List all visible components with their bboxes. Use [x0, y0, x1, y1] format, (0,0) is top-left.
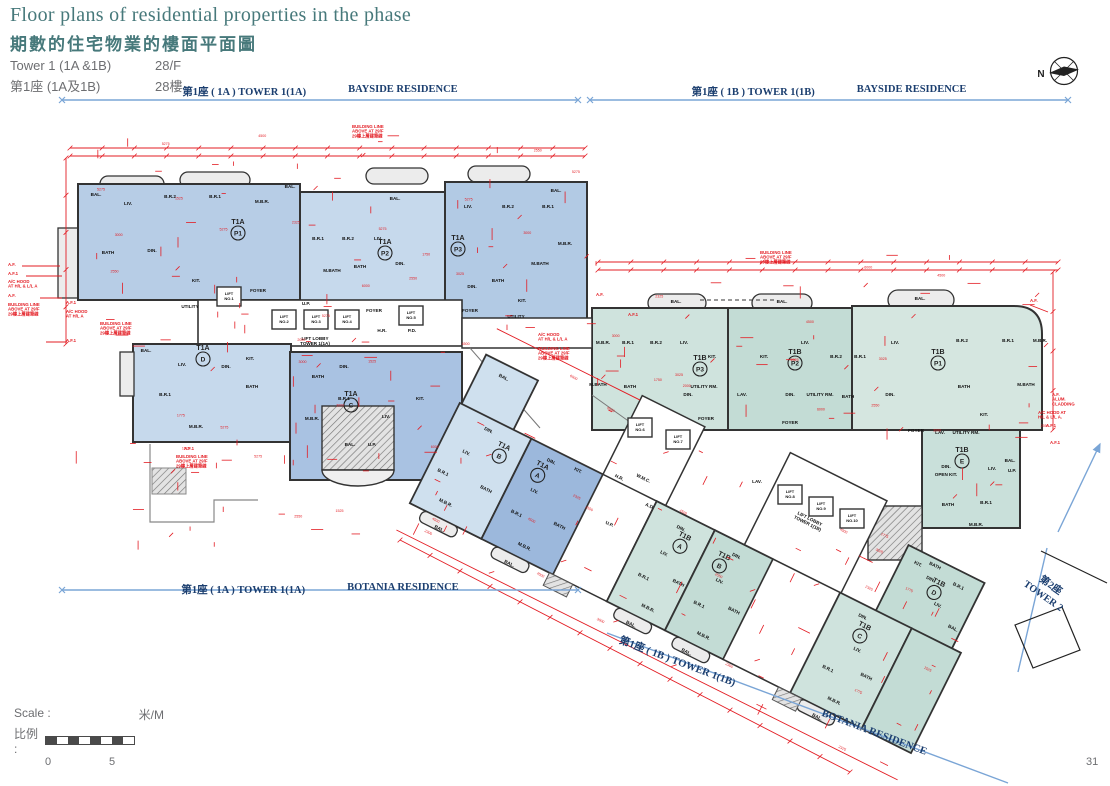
svg-text:1525: 1525: [368, 360, 376, 364]
svg-text:BAL.: BAL.: [91, 192, 102, 197]
boundary-top-right: 第1座 ( 1B ) TOWER 1(1B) BAYSIDE RESIDENCE: [590, 84, 1068, 99]
svg-text:FOYER: FOYER: [908, 428, 925, 433]
svg-text:NO.3: NO.3: [311, 319, 321, 324]
scale-label-en: Scale :: [14, 706, 51, 723]
floor-label-zh: 28樓: [155, 76, 182, 95]
svg-text:UTILITY RM.: UTILITY RM.: [953, 430, 980, 435]
boundary-zh: 第1座 ( 1B ) TOWER 1(1B): [692, 84, 815, 99]
svg-text:1525: 1525: [175, 196, 183, 200]
svg-text:FOYER: FOYER: [250, 288, 267, 293]
svg-text:BATH: BATH: [624, 384, 637, 389]
svg-text:P1: P1: [234, 230, 242, 237]
tower-floor-en: Tower 1 (1A &1B) 28/F: [10, 58, 411, 73]
svg-text:M.B.R.: M.B.R.: [255, 199, 269, 204]
svg-text:A.F.1: A.F.1: [628, 312, 639, 317]
boundary-en: BOTANIA RESIDENCE: [347, 582, 459, 597]
svg-text:T1A: T1A: [451, 235, 464, 242]
svg-text:3000: 3000: [523, 231, 531, 235]
svg-text:BAL.: BAL.: [345, 442, 356, 447]
svg-text:T1B: T1B: [693, 355, 706, 362]
svg-text:BUILDING LINEABOVE AT 29/F29樓上: BUILDING LINEABOVE AT 29/F29樓上層建築線: [538, 346, 570, 361]
svg-text:BAL.: BAL.: [915, 296, 926, 301]
svg-text:M.BATH: M.BATH: [323, 268, 341, 273]
svg-text:U.P.: U.P.: [368, 442, 376, 447]
svg-text:2550: 2550: [871, 404, 879, 408]
svg-text:M.BATH: M.BATH: [589, 382, 607, 387]
svg-text:LIV.: LIV.: [988, 466, 996, 471]
svg-text:OPEN KIT.: OPEN KIT.: [935, 472, 957, 477]
svg-text:6000: 6000: [431, 445, 439, 449]
boundary-zh: 第1座 ( 1A ) TOWER 1(1A): [181, 582, 305, 597]
tower-floor-zh: 第1座 (1A及1B) 28樓: [10, 76, 411, 95]
svg-text:3000: 3000: [612, 334, 620, 338]
svg-text:B.R.2: B.R.2: [650, 340, 662, 345]
svg-text:BAL.: BAL.: [551, 188, 562, 193]
svg-text:NO.8: NO.8: [785, 494, 795, 499]
svg-text:A.F.: A.F.: [596, 292, 604, 297]
svg-text:BAL.: BAL.: [671, 299, 682, 304]
svg-text:M.B.R.: M.B.R.: [305, 416, 319, 421]
svg-text:M.B.R.: M.B.R.: [189, 424, 203, 429]
svg-text:LIV.: LIV.: [124, 201, 132, 206]
svg-text:LIV.: LIV.: [801, 340, 809, 345]
svg-text:2325: 2325: [655, 295, 663, 299]
svg-text:KIT.: KIT.: [246, 356, 254, 361]
scale-bar: Scale : 米/M 比例 : 0 5: [14, 706, 164, 768]
svg-text:2325: 2325: [865, 585, 874, 592]
svg-text:2550: 2550: [294, 514, 302, 518]
svg-text:T1B: T1B: [955, 447, 968, 454]
svg-text:DIN.: DIN.: [785, 392, 794, 397]
compass-needle: [1049, 67, 1079, 77]
svg-text:6000: 6000: [362, 284, 370, 288]
svg-text:5275: 5275: [254, 455, 262, 459]
svg-text:KIT.: KIT.: [760, 354, 768, 359]
svg-text:BUILDING LINEABOVE AT 29/F29樓上: BUILDING LINEABOVE AT 29/F29樓上層建築線: [8, 302, 40, 317]
svg-text:A/C HOODAT H/L & L/L A: A/C HOODAT H/L & L/L A: [8, 279, 37, 289]
north-compass: N: [1037, 58, 1079, 85]
svg-text:2300: 2300: [424, 529, 433, 536]
svg-text:DIN.: DIN.: [885, 392, 894, 397]
svg-text:BUILDING LINEABOVE AT 29/F29樓上: BUILDING LINEABOVE AT 29/F29樓上層建築線: [100, 321, 132, 336]
svg-text:5275: 5275: [465, 197, 473, 201]
svg-text:4500: 4500: [462, 342, 470, 346]
svg-text:4500: 4500: [937, 274, 945, 278]
svg-text:DIN.: DIN.: [221, 364, 230, 369]
svg-text:5275: 5275: [322, 314, 330, 318]
svg-text:U.P.: U.P.: [302, 301, 310, 306]
svg-text:DIN.: DIN.: [339, 364, 348, 369]
svg-text:T1A: T1A: [378, 239, 391, 246]
svg-text:5275: 5275: [220, 227, 228, 231]
svg-text:P3: P3: [454, 246, 462, 253]
svg-text:FOYER: FOYER: [782, 420, 799, 425]
svg-text:P.D.: P.D.: [408, 328, 416, 333]
svg-text:LIV.: LIV.: [680, 340, 688, 345]
svg-text:A/C HOODAT H/L A: A/C HOODAT H/L A: [66, 309, 88, 319]
header: Floor plans of residential properties in…: [10, 4, 411, 95]
svg-text:B.R.1: B.R.1: [159, 392, 171, 397]
svg-text:BUILDING LINEABOVE AT 29/F29樓上: BUILDING LINEABOVE AT 29/F29樓上層建築線: [352, 124, 384, 139]
svg-text:BATH: BATH: [102, 250, 115, 255]
svg-text:P3: P3: [696, 366, 704, 373]
svg-text:KIT.: KIT.: [518, 298, 526, 303]
svg-text:A.F.: A.F.: [1030, 298, 1038, 303]
scale-unit: 米/M: [139, 706, 164, 723]
floor-label-en: 28/F: [155, 58, 181, 73]
svg-text:A.F.ALUM.CLADDING: A.F.ALUM.CLADDING: [1052, 392, 1075, 406]
svg-text:KIT.: KIT.: [192, 278, 200, 283]
svg-text:3000: 3000: [933, 429, 941, 433]
svg-text:NO.4: NO.4: [342, 319, 352, 324]
svg-text:1525: 1525: [182, 446, 190, 450]
page-title-zh: 期數的住宅物業的樓面平面圖: [10, 30, 411, 55]
svg-text:C: C: [349, 402, 354, 409]
svg-text:3025: 3025: [675, 373, 683, 377]
svg-text:B.R.1: B.R.1: [312, 236, 324, 241]
svg-text:BATH: BATH: [942, 502, 955, 507]
boundary-en: BAYSIDE RESIDENCE: [857, 84, 967, 99]
svg-text:BATH: BATH: [492, 278, 505, 283]
svg-text:BATH: BATH: [354, 264, 367, 269]
svg-text:A.F.: A.F.: [8, 262, 16, 267]
brochure-page: N BAL.DIN.LIV.B.R.1M.B.R.BATHBAL.DIN.KIT…: [0, 0, 1110, 786]
svg-text:D: D: [201, 356, 206, 363]
svg-text:NO.10: NO.10: [846, 518, 858, 523]
svg-text:BATH: BATH: [958, 384, 971, 389]
scale-label-zh: 比例 :: [14, 725, 44, 756]
svg-text:BUILDING LINEABOVE AT 29/F29樓上: BUILDING LINEABOVE AT 29/F29樓上層建築線: [176, 454, 208, 469]
svg-text:5275: 5275: [220, 425, 228, 429]
svg-text:UTILITY: UTILITY: [507, 314, 524, 319]
svg-text:BAL.: BAL.: [285, 184, 296, 189]
svg-text:P2: P2: [381, 250, 389, 257]
svg-text:2000: 2000: [297, 338, 305, 342]
svg-text:KIT.: KIT.: [416, 396, 424, 401]
svg-text:3000: 3000: [596, 617, 605, 624]
svg-text:B.R.2: B.R.2: [956, 338, 968, 343]
page-number: 31: [1086, 756, 1098, 768]
svg-text:BATH: BATH: [312, 374, 325, 379]
scale-bar-segments: [45, 736, 135, 745]
svg-text:LIV.: LIV.: [382, 414, 390, 419]
svg-text:5275: 5275: [97, 188, 105, 192]
svg-text:B.R.1: B.R.1: [854, 354, 866, 359]
svg-text:KIT.: KIT.: [980, 412, 988, 417]
svg-text:U.P.: U.P.: [1008, 468, 1016, 473]
svg-text:2000: 2000: [683, 384, 691, 388]
svg-text:M.B.R.: M.B.R.: [969, 522, 983, 527]
page-title-en: Floor plans of residential properties in…: [10, 4, 411, 27]
svg-text:3000: 3000: [336, 404, 344, 408]
svg-text:LIV.: LIV.: [464, 204, 472, 209]
svg-text:B.R.2: B.R.2: [502, 204, 514, 209]
svg-text:T1A: T1A: [231, 219, 244, 226]
svg-text:FOYER: FOYER: [698, 416, 715, 421]
svg-text:UTILITY RM.: UTILITY RM.: [691, 384, 718, 389]
svg-text:E: E: [960, 458, 965, 465]
svg-text:BAL.: BAL.: [141, 348, 152, 353]
svg-text:6000: 6000: [569, 374, 578, 381]
svg-text:M.BATH: M.BATH: [1017, 382, 1035, 387]
svg-text:KIT.: KIT.: [708, 354, 716, 359]
svg-text:DIN.: DIN.: [395, 261, 404, 266]
svg-text:NO.1: NO.1: [224, 296, 234, 301]
svg-text:3000: 3000: [299, 360, 307, 364]
svg-text:FOYER: FOYER: [366, 308, 383, 313]
svg-text:BUILDING LINEABOVE AT 29/F29樓上: BUILDING LINEABOVE AT 29/F29樓上層建築線: [760, 250, 792, 265]
svg-text:T1A: T1A: [196, 345, 209, 352]
svg-text:BAL.: BAL.: [390, 196, 401, 201]
svg-text:DIN.: DIN.: [467, 284, 476, 289]
svg-text:DIN.: DIN.: [147, 248, 156, 253]
tower-name-zh: 第1座 (1A及1B): [10, 76, 155, 95]
svg-text:M.B.R.: M.B.R.: [558, 241, 572, 246]
svg-text:LAV.: LAV.: [737, 392, 747, 397]
svg-text:5275: 5275: [162, 142, 170, 146]
svg-text:B.R.1: B.R.1: [1002, 338, 1014, 343]
svg-text:BATH: BATH: [246, 384, 259, 389]
svg-text:DIN.: DIN.: [683, 392, 692, 397]
svg-text:3025: 3025: [879, 357, 887, 361]
svg-text:A.F.1: A.F.1: [8, 271, 19, 276]
svg-text:2550: 2550: [409, 276, 417, 280]
svg-text:T1A: T1A: [344, 391, 357, 398]
svg-text:UTILITY RM.: UTILITY RM.: [807, 392, 834, 397]
svg-text:BATH: BATH: [842, 394, 855, 399]
svg-text:A.F.1: A.F.1: [1050, 440, 1061, 445]
svg-text:1775: 1775: [177, 414, 185, 418]
svg-text:NO.6: NO.6: [635, 427, 645, 432]
svg-text:2550: 2550: [534, 148, 542, 152]
svg-text:DIN.: DIN.: [941, 464, 950, 469]
svg-text:1750: 1750: [422, 253, 430, 257]
svg-text:P1: P1: [934, 360, 942, 367]
svg-text:NO.5: NO.5: [406, 315, 416, 320]
svg-text:4500: 4500: [536, 571, 545, 578]
svg-text:M.B.R.: M.B.R.: [1033, 338, 1047, 343]
svg-text:LAV.: LAV.: [752, 479, 762, 484]
svg-text:4500: 4500: [806, 320, 814, 324]
svg-text:A.F.1: A.F.1: [66, 300, 77, 305]
svg-text:LIV.: LIV.: [891, 340, 899, 345]
floor-plan-svg: N BAL.DIN.LIV.B.R.1M.B.R.BATHBAL.DIN.KIT…: [0, 0, 1110, 786]
svg-text:BAL.: BAL.: [1005, 458, 1016, 463]
svg-text:T1B: T1B: [788, 349, 801, 356]
svg-text:NO.7: NO.7: [673, 439, 683, 444]
svg-text:B.R.2: B.R.2: [342, 236, 354, 241]
svg-text:B.R.1: B.R.1: [542, 204, 554, 209]
svg-text:B.R.1: B.R.1: [622, 340, 634, 345]
svg-text:2550: 2550: [1041, 424, 1049, 428]
svg-text:NO.2: NO.2: [279, 319, 289, 324]
svg-text:LIV.: LIV.: [178, 362, 186, 367]
svg-text:3000: 3000: [115, 233, 123, 237]
svg-text:B.R.1: B.R.1: [980, 500, 992, 505]
svg-text:NO.9: NO.9: [816, 506, 826, 511]
svg-text:M.BATH: M.BATH: [531, 261, 549, 266]
scale-start: 0: [45, 756, 51, 768]
compass-north-label: N: [1037, 69, 1044, 80]
svg-text:6000: 6000: [817, 408, 825, 412]
svg-text:T1B: T1B: [931, 349, 944, 356]
svg-text:M.B.R.: M.B.R.: [596, 340, 610, 345]
boundary-bottom-left: 第1座 ( 1A ) TOWER 1(1A) BOTANIA RESIDENCE: [62, 582, 578, 597]
tower-name-en: Tower 1 (1A &1B): [10, 58, 155, 73]
svg-text:A/C HOOD ATH/L & L/L A.: A/C HOOD ATH/L & L/L A.: [1038, 410, 1066, 420]
svg-text:3025: 3025: [456, 272, 464, 276]
svg-text:UTILITY: UTILITY: [181, 304, 198, 309]
svg-text:5275: 5275: [572, 170, 580, 174]
svg-text:4500: 4500: [258, 134, 266, 138]
scale-end: 5: [109, 756, 115, 768]
svg-text:H.R.: H.R.: [377, 328, 386, 333]
svg-text:A.F.: A.F.: [8, 293, 16, 298]
svg-text:2550: 2550: [110, 269, 118, 273]
svg-text:5275: 5275: [379, 227, 387, 231]
svg-text:1525: 1525: [336, 509, 344, 513]
svg-text:FOYER: FOYER: [462, 308, 479, 313]
svg-text:B.R.2: B.R.2: [830, 354, 842, 359]
svg-text:BAL.: BAL.: [777, 299, 788, 304]
svg-text:6000: 6000: [864, 265, 872, 269]
svg-text:1750: 1750: [654, 378, 662, 382]
svg-text:2325: 2325: [791, 358, 799, 362]
svg-text:2325: 2325: [292, 221, 300, 225]
svg-text:B.R.1: B.R.1: [209, 194, 221, 199]
